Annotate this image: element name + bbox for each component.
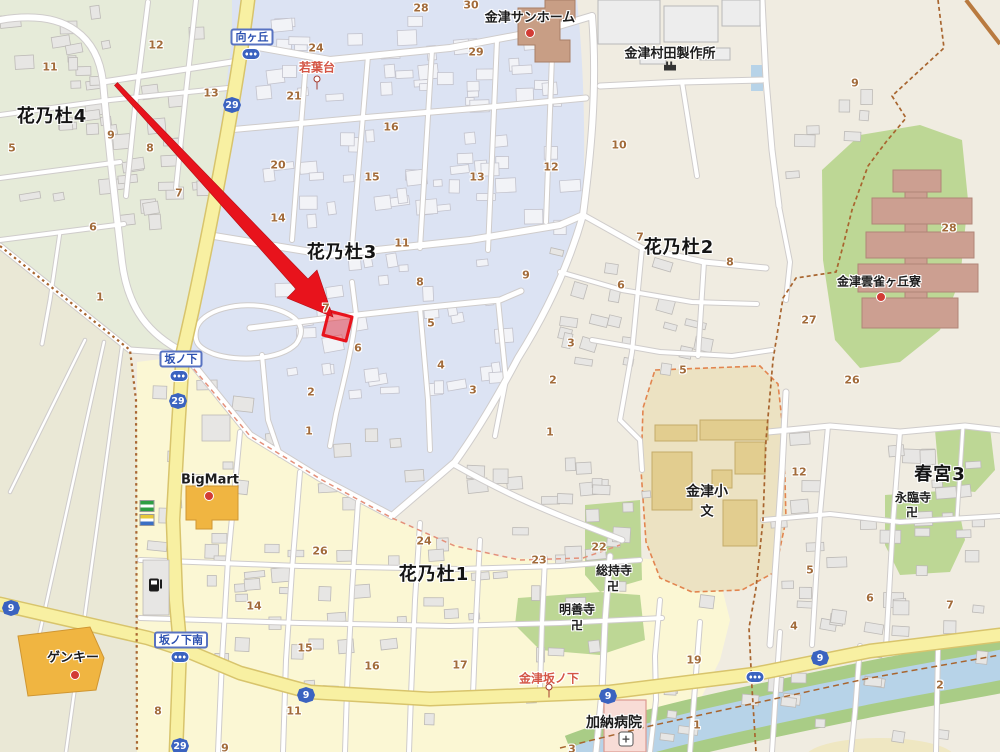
- place-label: 卍: [571, 617, 583, 634]
- lot-number: 12: [148, 39, 163, 52]
- lot-number: 7: [636, 231, 644, 244]
- building: [143, 201, 160, 215]
- place-label: ゲンキー: [47, 647, 99, 666]
- lot-number: 17: [452, 659, 467, 672]
- lot-number: 5: [806, 564, 814, 577]
- lot-number: 26: [312, 545, 327, 558]
- place-label: 金津村田製作所: [624, 43, 715, 62]
- building: [831, 609, 847, 624]
- building: [965, 551, 979, 562]
- building: [381, 82, 393, 95]
- route-shield: 9: [2, 600, 20, 616]
- poi-pin-icon[interactable]: [545, 684, 554, 699]
- place-label: 総持寺: [596, 562, 632, 579]
- building: [476, 69, 494, 80]
- building: [476, 259, 488, 267]
- lot-number: 8: [726, 256, 734, 269]
- building: [68, 57, 77, 70]
- building: [153, 386, 167, 399]
- building: [467, 91, 478, 98]
- building: [364, 368, 379, 383]
- lot-number: 29: [468, 46, 483, 59]
- building: [457, 153, 473, 164]
- lot-number: 2: [549, 374, 557, 387]
- building: [623, 503, 634, 513]
- building: [791, 673, 806, 683]
- bus-stop-icon[interactable]: [242, 48, 261, 60]
- building: [642, 491, 651, 498]
- building: [604, 263, 618, 275]
- lot-number: 19: [686, 654, 701, 667]
- building: [557, 493, 573, 504]
- lot-number: 9: [522, 269, 530, 282]
- poi-dot-marker[interactable]: [525, 28, 535, 38]
- building: [408, 16, 423, 26]
- building: [789, 432, 810, 445]
- building: [384, 64, 395, 78]
- place-label: 卍: [906, 504, 918, 521]
- building: [334, 443, 352, 457]
- building: [90, 5, 101, 19]
- building: [322, 363, 332, 375]
- building: [660, 733, 674, 741]
- building: [424, 713, 434, 724]
- lot-number: 3: [568, 743, 576, 752]
- building: [935, 486, 956, 499]
- building: [340, 133, 354, 146]
- lot-number: 11: [42, 61, 57, 74]
- building: [327, 202, 337, 215]
- lot-number: 5: [679, 364, 687, 377]
- building: [512, 65, 532, 75]
- building: [560, 316, 578, 327]
- poi-name-label: 若葉台: [299, 59, 335, 76]
- building: [212, 533, 227, 543]
- building: [491, 362, 501, 373]
- lot-number: 27: [801, 314, 816, 327]
- building: [972, 605, 984, 613]
- building: [916, 566, 927, 576]
- lot-number: 14: [246, 600, 261, 613]
- building: [782, 581, 794, 589]
- building: [956, 530, 971, 538]
- building: [802, 481, 822, 492]
- building: [423, 286, 434, 301]
- lot-number: 23: [531, 554, 546, 567]
- route-shield: 29: [171, 738, 189, 752]
- building: [53, 192, 65, 201]
- building: [799, 587, 811, 599]
- building: [397, 188, 408, 204]
- lot-number: 9: [221, 742, 229, 752]
- building: [112, 134, 130, 150]
- poi-dot-marker[interactable]: [70, 670, 80, 680]
- building: [915, 528, 930, 536]
- building: [892, 730, 905, 743]
- building: [283, 65, 297, 77]
- lot-number: 30: [463, 0, 478, 12]
- building: [397, 30, 417, 46]
- building: [794, 134, 815, 147]
- lot-number: 8: [416, 276, 424, 289]
- lot-number: 13: [469, 171, 484, 184]
- lot-number: 13: [203, 87, 218, 100]
- bus-stop-icon[interactable]: [170, 370, 189, 382]
- lot-number: 24: [308, 42, 323, 55]
- lot-number: 15: [364, 171, 379, 184]
- poi-pin-icon[interactable]: [313, 76, 322, 91]
- building: [86, 123, 98, 134]
- district-label: 花乃杜1: [399, 560, 470, 586]
- bus-stop-icon[interactable]: [171, 651, 190, 663]
- building: [699, 595, 714, 609]
- building: [861, 89, 873, 104]
- lot-number: 28: [941, 222, 956, 235]
- building: [349, 390, 362, 399]
- building: [365, 429, 378, 442]
- highlighted-parcel[interactable]: [323, 311, 352, 341]
- district-label: 春宮3: [914, 460, 966, 486]
- district-label: 花乃杜4: [17, 102, 88, 128]
- lot-number: 2: [307, 386, 315, 399]
- place-label: 金津サンホーム: [485, 7, 576, 26]
- building: [307, 214, 317, 228]
- building: [965, 461, 981, 469]
- building: [592, 485, 610, 495]
- lot-number: 4: [790, 620, 798, 633]
- convenience-store-icon-green[interactable]: [140, 500, 155, 512]
- building: [223, 462, 233, 469]
- building: [390, 438, 401, 447]
- lot-number: 22: [591, 541, 606, 554]
- lot-number: 28: [413, 2, 428, 15]
- building: [399, 265, 408, 272]
- building: [101, 40, 110, 49]
- lot-number: 24: [416, 535, 431, 548]
- lot-number: 1: [96, 291, 104, 304]
- place-label: 文: [700, 501, 713, 520]
- building: [827, 557, 847, 568]
- lot-number: 6: [354, 342, 362, 355]
- route-shield: 9: [297, 687, 315, 703]
- building: [238, 480, 249, 495]
- lot-number: 15: [297, 642, 312, 655]
- building: [326, 94, 344, 102]
- lot-number: 1: [305, 425, 313, 438]
- building: [433, 180, 442, 187]
- lot-number: 6: [866, 592, 874, 605]
- lot-number: 1: [693, 719, 701, 732]
- building: [380, 387, 399, 394]
- building: [944, 621, 956, 634]
- building: [232, 396, 254, 412]
- building: [493, 469, 508, 483]
- lot-number: 7: [322, 302, 330, 315]
- lot-number: 1: [546, 426, 554, 439]
- lot-number: 5: [427, 317, 435, 330]
- gas-station-icon[interactable]: [149, 579, 159, 592]
- building: [938, 730, 949, 740]
- lot-number: 10: [611, 139, 626, 152]
- place-label: 金津雲雀ヶ丘寮: [837, 273, 921, 290]
- building: [893, 601, 909, 615]
- route-shield: 29: [223, 97, 241, 113]
- building: [807, 126, 820, 135]
- place-label: 卍: [607, 578, 619, 595]
- lot-number: 9: [851, 77, 859, 90]
- lot-number: 26: [844, 374, 859, 387]
- bus-stop-label[interactable]: 向ヶ丘: [231, 29, 274, 46]
- lot-number: 8: [154, 705, 162, 718]
- lot-number: 8: [146, 142, 154, 155]
- building: [467, 81, 479, 91]
- map-viewport[interactable]: 1112139857612421201428302916151312111098…: [0, 0, 1000, 752]
- lot-number: 11: [286, 705, 301, 718]
- building: [337, 550, 352, 561]
- building: [300, 196, 318, 209]
- building: [15, 55, 34, 70]
- building: [405, 469, 424, 482]
- bus-stop-label[interactable]: 坂ノ下南: [154, 632, 208, 649]
- building: [859, 110, 869, 121]
- lot-number: 4: [437, 359, 445, 372]
- building: [560, 179, 581, 192]
- building: [378, 275, 388, 285]
- building: [493, 571, 507, 578]
- building: [586, 509, 600, 522]
- poi-dot-marker[interactable]: [204, 491, 214, 501]
- building: [287, 367, 298, 376]
- building: [289, 37, 310, 45]
- building: [450, 165, 469, 175]
- building: [374, 195, 391, 210]
- place-label: 加納病院: [586, 712, 642, 732]
- building: [437, 73, 453, 85]
- building: [271, 18, 293, 32]
- building: [548, 648, 564, 656]
- lot-number: 7: [946, 599, 954, 612]
- building: [588, 640, 600, 653]
- bus-stop-label[interactable]: 坂ノ下: [160, 351, 203, 368]
- building: [513, 528, 529, 535]
- building: [386, 253, 398, 268]
- building: [149, 214, 162, 230]
- lot-number: 3: [567, 337, 575, 350]
- place-label: BigMart: [181, 473, 239, 488]
- building: [786, 171, 800, 179]
- place-label: 明善寺: [559, 601, 595, 618]
- building: [815, 719, 825, 728]
- building: [506, 476, 522, 490]
- building: [790, 499, 809, 514]
- lot-number: 21: [286, 90, 301, 103]
- building: [256, 85, 272, 100]
- lot-number: 2: [936, 679, 944, 692]
- lot-number: 12: [791, 466, 806, 479]
- building: [449, 180, 460, 193]
- route-shield: 9: [811, 650, 829, 666]
- building: [343, 175, 354, 182]
- building: [207, 575, 216, 586]
- building: [781, 697, 797, 708]
- building: [839, 100, 850, 112]
- building: [244, 578, 260, 590]
- building: [532, 586, 540, 601]
- lot-number: 5: [8, 142, 16, 155]
- building: [495, 178, 516, 193]
- poi-dot-marker[interactable]: [876, 292, 886, 302]
- building: [319, 586, 332, 601]
- building: [309, 172, 323, 180]
- building: [380, 638, 397, 650]
- building: [147, 541, 167, 552]
- murata-factory-building[interactable]: [598, 0, 660, 44]
- building: [265, 544, 279, 553]
- building: [524, 209, 543, 224]
- building: [892, 626, 909, 637]
- building: [424, 598, 444, 606]
- route-shield: 9: [599, 688, 617, 704]
- lot-number: 6: [89, 221, 97, 234]
- lot-number: 9: [107, 129, 115, 142]
- district-label: 花乃杜2: [644, 233, 715, 259]
- hospital-icon[interactable]: +: [619, 732, 634, 747]
- lot-number: 12: [543, 161, 558, 174]
- building: [434, 381, 443, 394]
- building: [76, 67, 91, 76]
- lot-number: 16: [364, 660, 379, 673]
- building: [396, 70, 414, 78]
- convenience-store-icon-blue[interactable]: [140, 514, 155, 526]
- building: [235, 637, 250, 651]
- building: [416, 199, 438, 215]
- lot-number: 16: [383, 121, 398, 134]
- building: [844, 131, 861, 141]
- building: [348, 34, 363, 46]
- building: [660, 363, 671, 375]
- building: [607, 315, 621, 328]
- building: [366, 130, 375, 142]
- building: [576, 462, 592, 474]
- building: [464, 132, 475, 144]
- district-label: 花乃杜3: [307, 238, 378, 264]
- building: [565, 458, 575, 471]
- place-label: 金津小: [686, 481, 728, 501]
- lot-number: 7: [175, 187, 183, 200]
- lot-number: 11: [394, 237, 409, 250]
- building: [444, 609, 458, 619]
- route-shield: 29: [169, 393, 187, 409]
- lot-number: 6: [617, 279, 625, 292]
- bus-stop-icon[interactable]: [746, 671, 765, 683]
- lot-number: 20: [270, 159, 285, 172]
- lot-number: 14: [270, 212, 285, 225]
- building: [326, 285, 344, 298]
- building: [71, 81, 81, 89]
- building: [667, 710, 677, 718]
- building: [797, 601, 814, 608]
- lot-number: 3: [469, 384, 477, 397]
